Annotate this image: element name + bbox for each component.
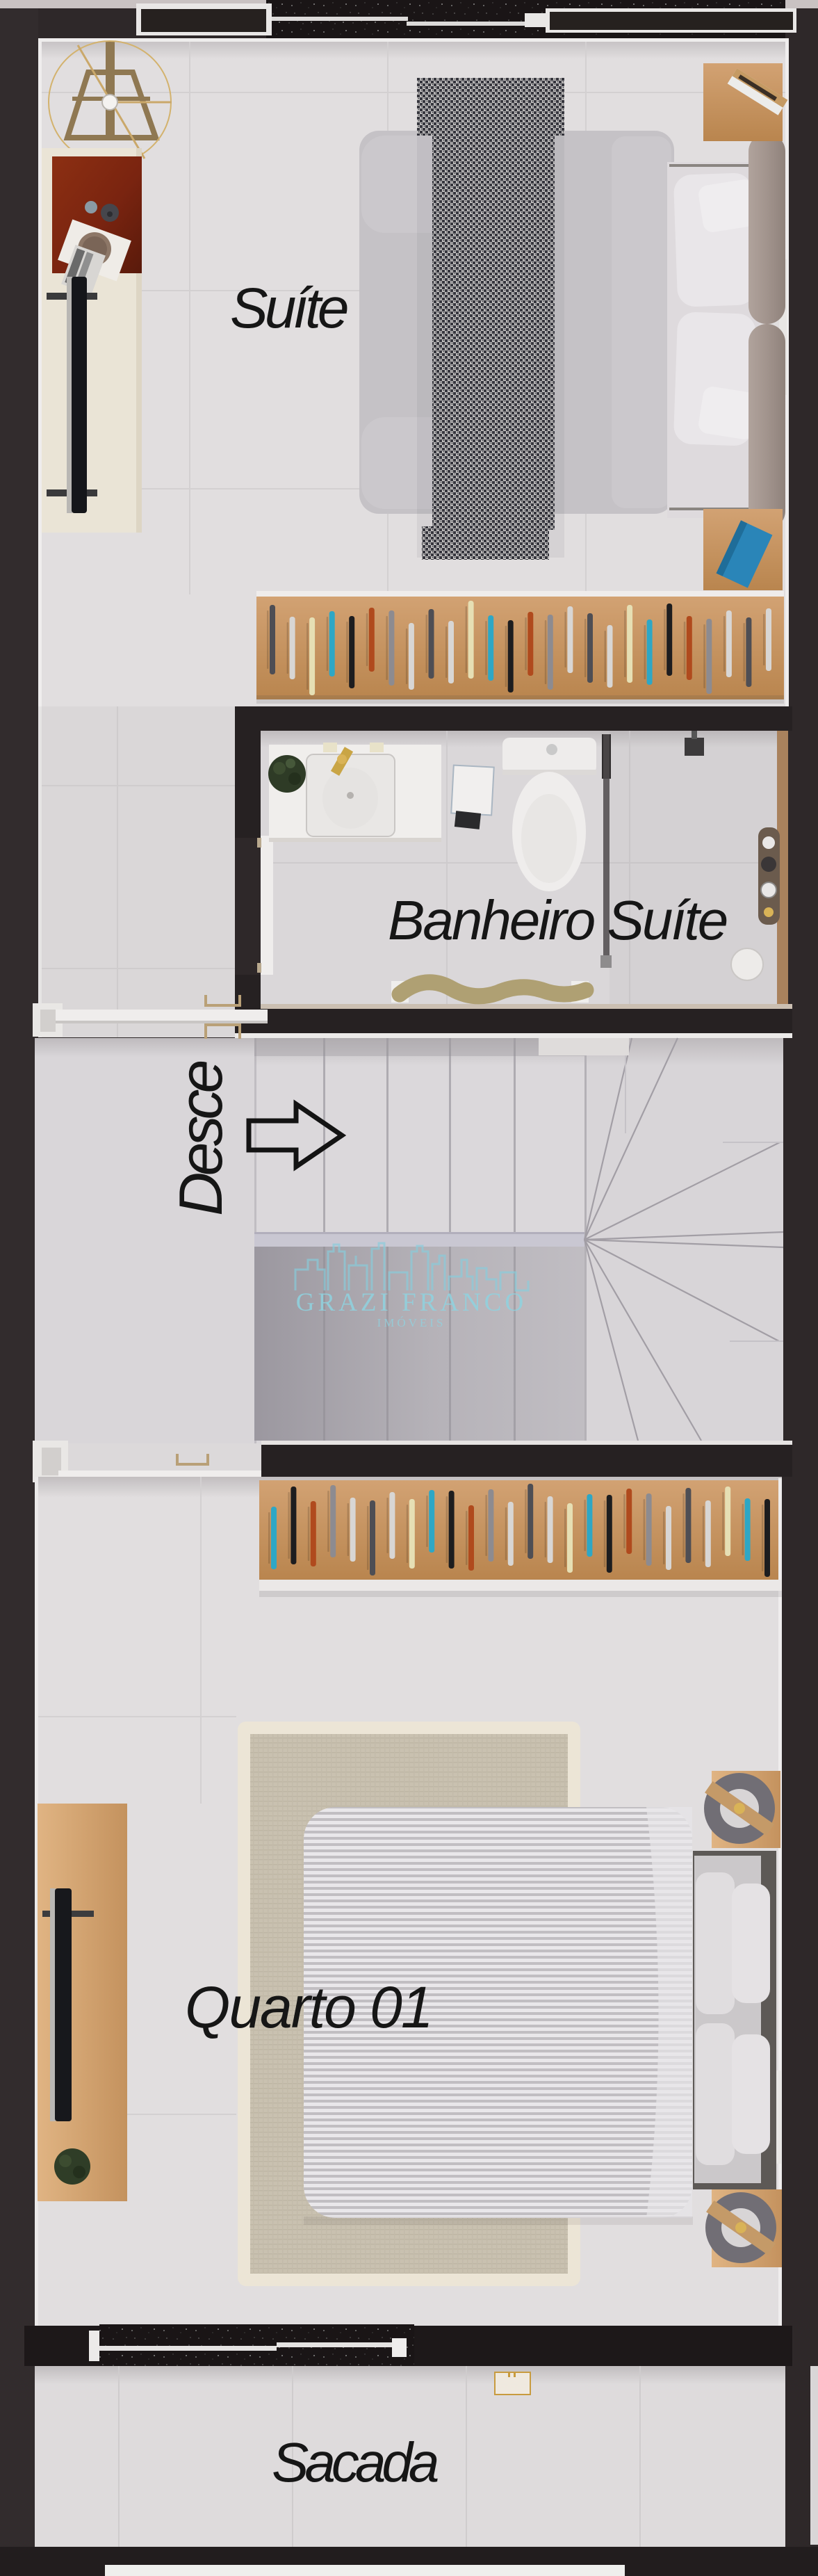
svg-text:Sacada: Sacada <box>272 2431 438 2493</box>
svg-text:Quarto 01: Quarto 01 <box>185 1975 432 2040</box>
svg-text:Desce: Desce <box>166 1062 235 1216</box>
svg-text:Suíte: Suíte <box>230 277 347 340</box>
svg-text:GRAZI FRANCO: GRAZI FRANCO <box>296 1288 527 1317</box>
svg-text:Banheiro Suíte: Banheiro Suíte <box>388 889 727 951</box>
svg-text:IMÓVEIS: IMÓVEIS <box>377 1316 446 1329</box>
